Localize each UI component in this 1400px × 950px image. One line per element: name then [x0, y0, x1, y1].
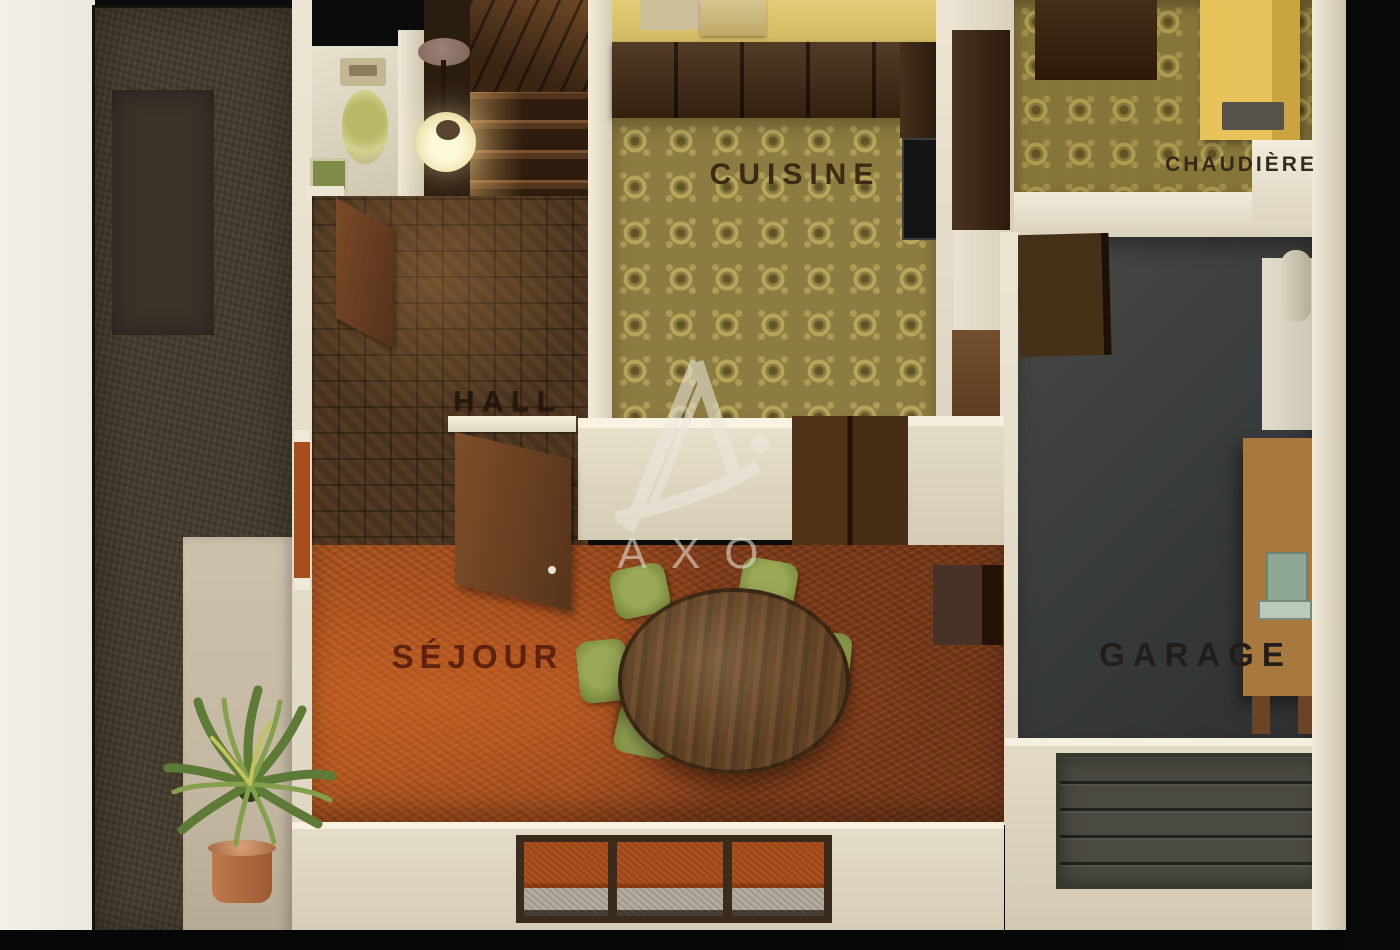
hall-sejour-door-open [455, 432, 571, 611]
sejour-window-south [516, 835, 832, 923]
workbench-leg [1252, 696, 1270, 734]
wall-kitchen-south-east [908, 416, 1004, 564]
bottom-black-band [0, 930, 1400, 950]
door-handle [548, 566, 556, 574]
water-heater-cylinder [1281, 250, 1311, 322]
right-black-band [1346, 0, 1400, 950]
toilet-cistern-slot [349, 65, 377, 76]
window-pane [617, 842, 723, 916]
room-label-sejour: SÉJOUR [380, 638, 575, 676]
room-label-hall: HALL [438, 386, 578, 419]
garage-interior-door [1016, 233, 1111, 357]
boiler-vent [1222, 102, 1284, 130]
toilet [342, 90, 388, 164]
axo-watermark-text: AXO [618, 529, 783, 578]
window-pane [732, 842, 824, 916]
window-pane [524, 842, 608, 916]
potted-palm-plant [150, 672, 350, 872]
tall-cabinet [952, 30, 1010, 230]
workbench-vise-bar [1258, 600, 1312, 620]
kitchen-sejour-doors [792, 416, 908, 546]
floor-plan-scene: CUISINE CHAUDIÈRE HALL SÉJOUR GARAGE AXO [0, 0, 1400, 950]
chaudiere-door [1035, 0, 1157, 80]
staircase-winder-treads [470, 0, 588, 92]
sideboard [933, 565, 1003, 645]
kitchen-counter-right [900, 42, 936, 138]
axo-watermark: AXO [600, 352, 800, 582]
sejour-window-west [294, 430, 310, 590]
wall-east [1312, 0, 1346, 935]
room-label-chaudiere: CHAUDIÈRE [1148, 153, 1334, 177]
garden-inner-patch [112, 90, 214, 335]
room-label-garage: GARAGE [1088, 636, 1303, 674]
left-margin-strip [0, 0, 95, 935]
kitchen-cabinets [612, 42, 936, 118]
garage-door [1056, 753, 1326, 889]
pendant-lamp-stem [441, 60, 446, 118]
dining-table [618, 588, 850, 774]
axo-watermark-dot [751, 435, 769, 453]
room-label-cuisine: CUISINE [690, 158, 900, 192]
kitchen-exterior-sink [700, 0, 766, 36]
pendant-lamp-bulb [436, 120, 460, 140]
